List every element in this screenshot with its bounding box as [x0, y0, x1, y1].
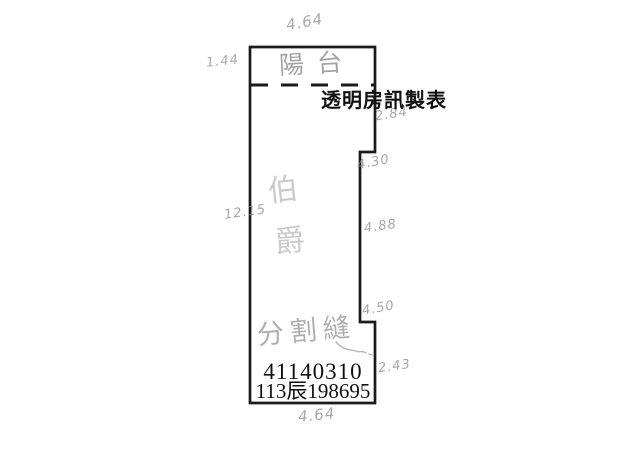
producer-label: 透明房訊製表 [321, 91, 447, 111]
partition-seam-label: 分割縫 [256, 314, 357, 350]
interior-name-char-2: 爵 [274, 226, 306, 258]
interior-name-char-1: 伯 [267, 175, 300, 208]
dimension-balcony-depth: 1.44 [205, 53, 239, 69]
floor-plan-sheet: 4.64 1.44 陽台 2.84 4.30 12.15 伯 爵 4.88 4.… [0, 0, 640, 457]
balcony-label: 陽台 [278, 49, 355, 78]
case-number: 113辰198695 [250, 381, 376, 402]
dimension-bottom-width: 4.64 [297, 406, 336, 425]
